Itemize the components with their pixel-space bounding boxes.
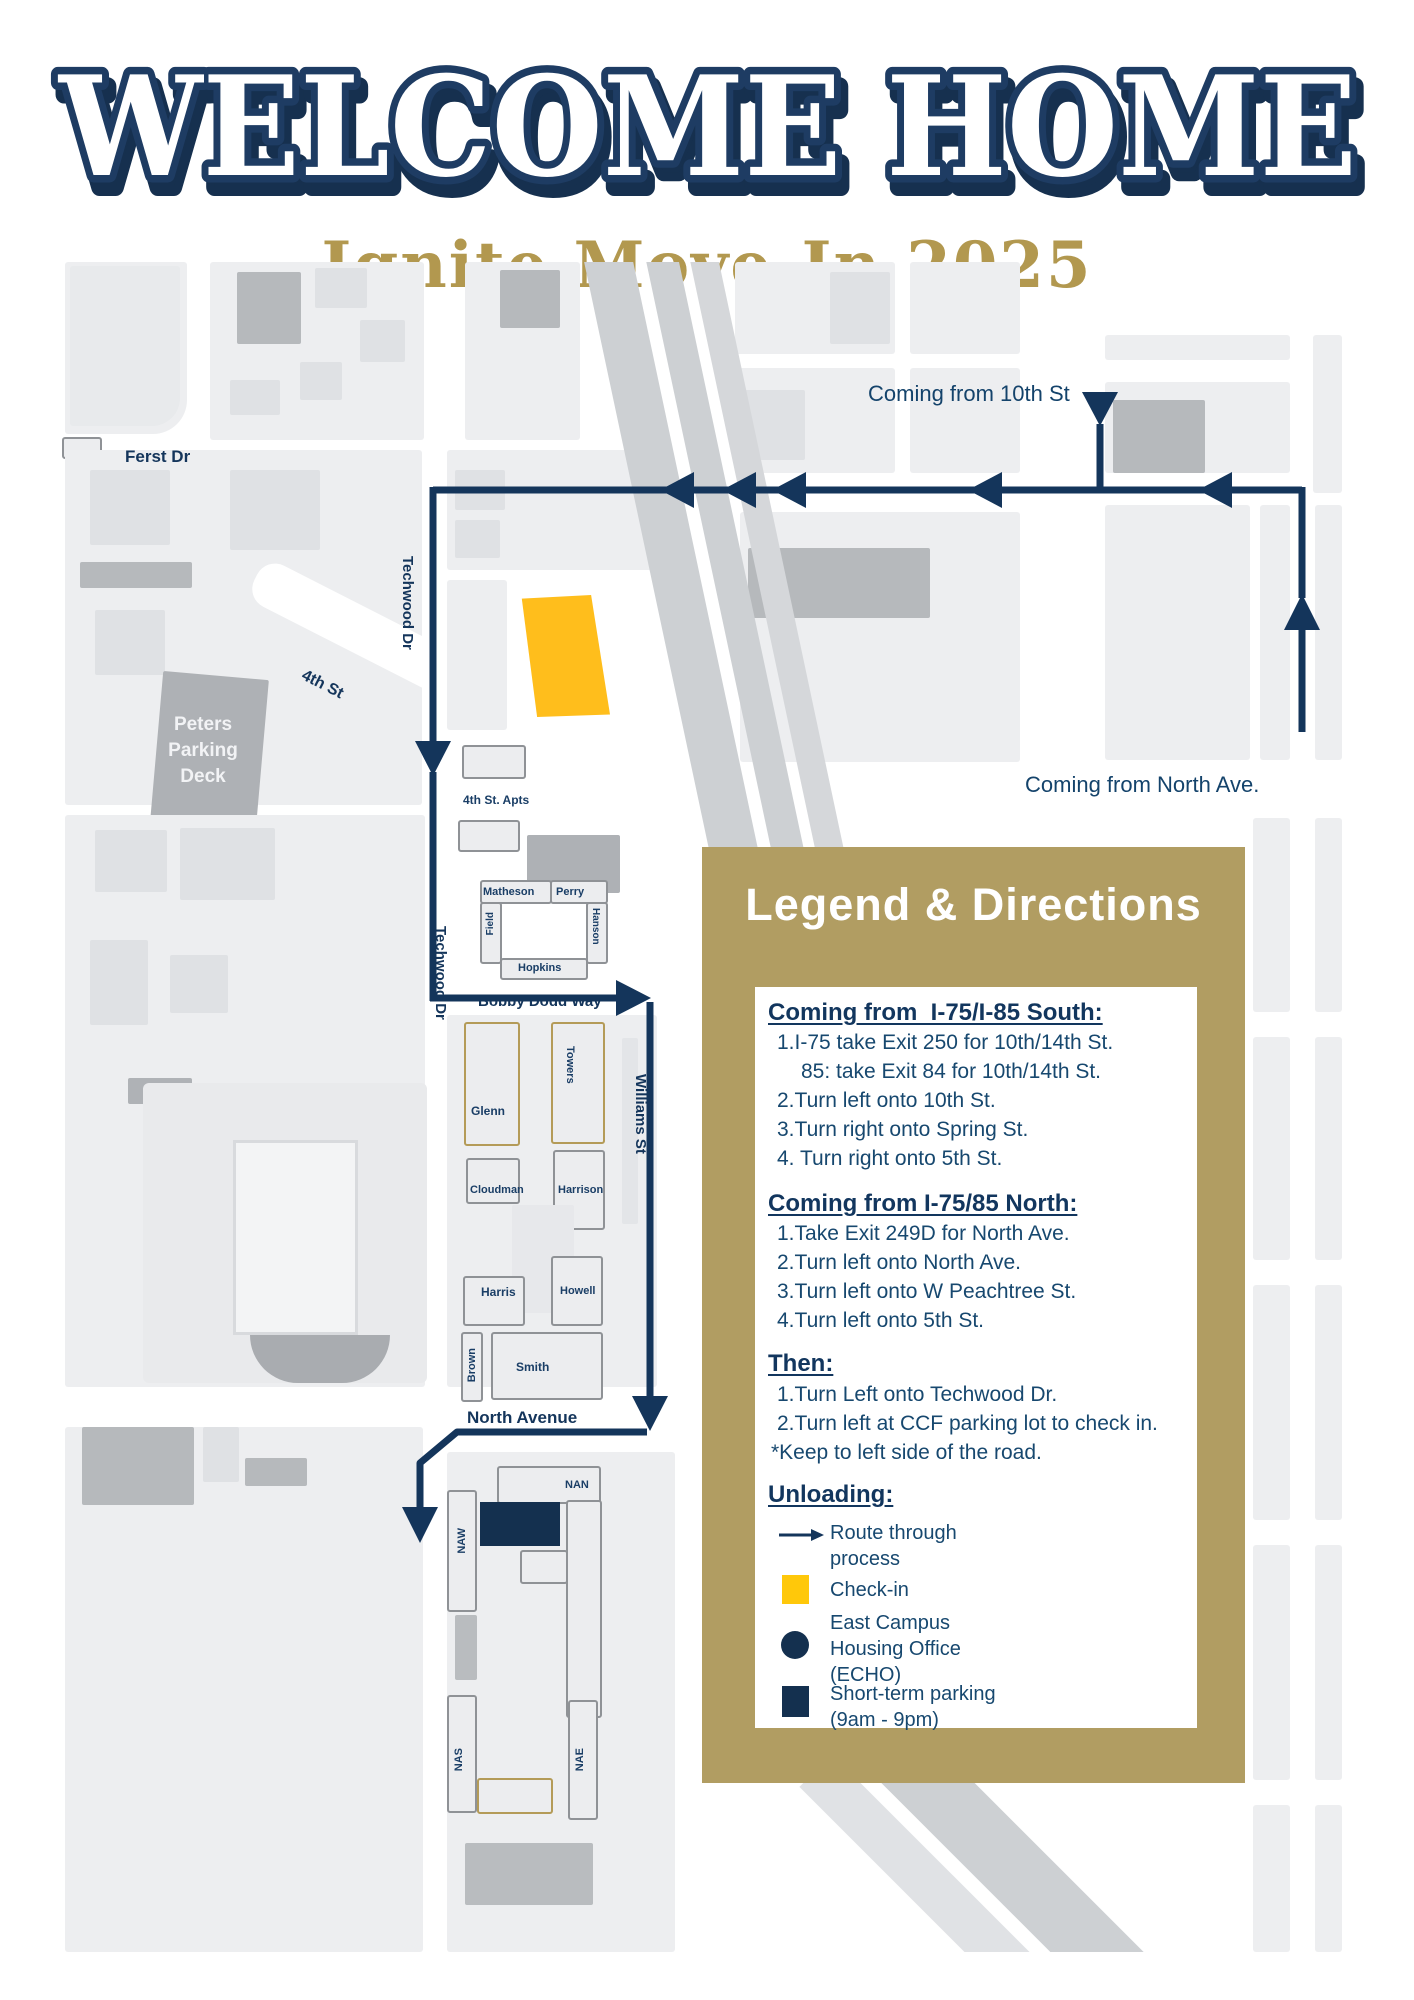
direction-step: 1.Turn Left onto Techwood Dr. [777, 1383, 1057, 1407]
welcome-home-title: WELCOME HOME WELCOME HOME [0, 30, 1414, 210]
direction-step: 2.Turn left onto 10th St. [777, 1089, 996, 1113]
street-label-bobby-dodd-way: Bobby Dodd Way [478, 993, 602, 1010]
poster-page: WELCOME HOME WELCOME HOME Ignite Move-In… [0, 0, 1414, 2000]
direction-step: 4. Turn right onto 5th St. [777, 1147, 1002, 1171]
direction-step: 1.Take Exit 249D for North Ave. [777, 1222, 1070, 1246]
street-label-techwood-dr-lower: Techwood Dr [432, 926, 449, 1020]
street-label-techwood-dr-upper: Techwood Dr [399, 556, 416, 650]
route-arrow-icon [777, 1527, 825, 1543]
heading-south: Coming from I-75/I-85 South: [768, 999, 1103, 1027]
heading-then: Then: [768, 1350, 833, 1378]
direction-note: *Keep to left side of the road. [771, 1441, 1042, 1465]
echo-dot-icon [781, 1631, 809, 1659]
direction-step: 3.Turn right onto Spring St. [777, 1118, 1028, 1142]
legend-item-label-route: Route through process [830, 1520, 957, 1572]
direction-step: 2.Turn left at CCF parking lot to check … [777, 1412, 1158, 1436]
street-label-williams-st: Williams St [632, 1074, 649, 1154]
direction-step: 1.I-75 take Exit 250 for 10th/14th St. [777, 1031, 1113, 1055]
street-label-north-avenue: North Avenue [467, 1408, 577, 1428]
street-label-ferst-dr: Ferst Dr [125, 447, 190, 467]
legend-panel-title: Legend & Directions [702, 847, 1245, 931]
legend-item-label-checkin: Check-in [830, 1577, 909, 1603]
heading-north: Coming from I-75/85 North: [768, 1190, 1077, 1218]
check-in-swatch [782, 1575, 809, 1604]
legend-item-label-echo: East Campus Housing Office (ECHO) [830, 1610, 961, 1688]
direction-step: 3.Turn left onto W Peachtree St. [777, 1280, 1076, 1304]
parking-swatch [782, 1686, 809, 1717]
direction-step: 4.Turn left onto 5th St. [777, 1309, 984, 1333]
title-text: WELCOME HOME [57, 45, 1357, 208]
legend-item-label-parking: Short-term parking (9am - 9pm) [830, 1681, 996, 1733]
legend-directions-panel: Legend & Directions Coming from I-75/I-8… [702, 847, 1245, 1783]
direction-step: 2.Turn left onto North Ave. [777, 1251, 1021, 1275]
direction-step: 85: take Exit 84 for 10th/14th St. [801, 1060, 1101, 1084]
directions-card: Coming from I-75/I-85 South: 1.I-75 take… [755, 987, 1197, 1728]
heading-unloading: Unloading: [768, 1481, 893, 1509]
route-label-coming-from-north: Coming from North Ave. [1025, 772, 1259, 798]
route-label-coming-from-10th: Coming from 10th St [868, 381, 1070, 407]
